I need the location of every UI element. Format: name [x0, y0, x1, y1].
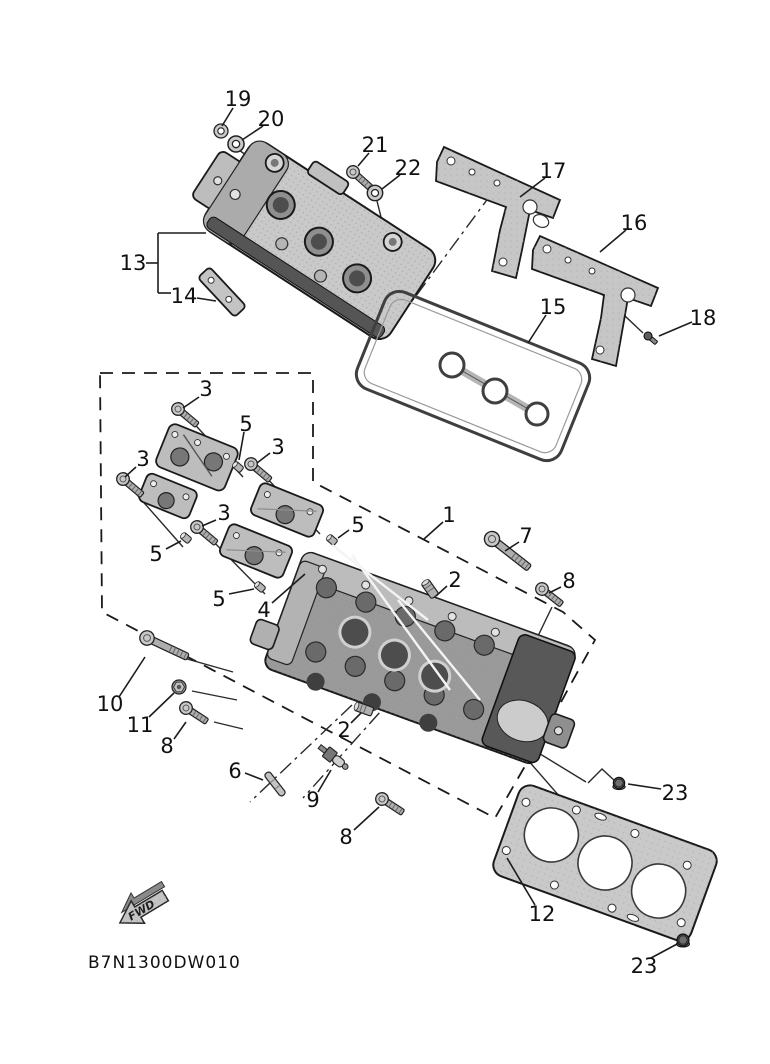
callout-4[interactable]: 4: [257, 598, 270, 622]
callout-17[interactable]: 17: [540, 159, 567, 183]
callout-2[interactable]: 2: [337, 718, 350, 742]
callout-5[interactable]: 5: [149, 542, 162, 566]
leader-line: [659, 322, 692, 336]
callout-15[interactable]: 15: [540, 295, 567, 319]
callout-19[interactable]: 19: [225, 87, 252, 111]
callout-14[interactable]: 14: [171, 284, 198, 308]
callout-20[interactable]: 20: [258, 107, 285, 131]
callout-8[interactable]: 8: [562, 569, 575, 593]
leader-line: [166, 541, 181, 549]
nut-11: [172, 680, 186, 694]
spark-plug-9: [316, 742, 351, 773]
callout-8[interactable]: 8: [339, 825, 352, 849]
callout-22[interactable]: 22: [395, 156, 422, 180]
leader-line: [257, 453, 270, 463]
callout-3[interactable]: 3: [136, 447, 149, 471]
bolt-8a: [533, 580, 565, 609]
leader-line: [338, 530, 349, 538]
callout-6[interactable]: 6: [228, 759, 241, 783]
leader-line: [245, 773, 263, 780]
diagram-code: B7N1300DW010: [88, 953, 241, 973]
leader-line: [436, 586, 447, 596]
part-cover-plate: [198, 267, 247, 317]
grommet-22: [367, 185, 382, 200]
bolt-washer-19: [214, 124, 228, 138]
leader-line: [174, 722, 186, 739]
leader-line: [183, 397, 199, 408]
callout-7[interactable]: 7: [519, 524, 532, 548]
callout-2[interactable]: 2: [448, 568, 461, 592]
stud-6: [264, 771, 287, 797]
callout-23[interactable]: 23: [631, 954, 658, 978]
callout-5[interactable]: 5: [351, 513, 364, 537]
part-cylinder-head: [241, 543, 599, 778]
leader-line: [354, 807, 379, 830]
callout-3[interactable]: 3: [217, 501, 230, 525]
leader-line: [549, 587, 561, 593]
callout-21[interactable]: 21: [362, 133, 389, 157]
fwd-arrow: FWD: [110, 876, 176, 934]
part-head-gasket: [490, 782, 720, 944]
leader-line: [119, 657, 145, 697]
leader-line: [318, 770, 331, 792]
callout-5[interactable]: 5: [212, 587, 225, 611]
screw-18: [642, 330, 659, 346]
callout-23[interactable]: 23: [662, 781, 689, 805]
leader-line: [202, 520, 216, 526]
dowel-nut-23a: [613, 777, 625, 789]
callout-13[interactable]: 13: [120, 251, 147, 275]
part-cylinder-head-cover: [180, 114, 447, 344]
camshaft-caps: [137, 422, 325, 579]
callout-12[interactable]: 12: [529, 902, 556, 926]
leader-line: [229, 589, 254, 594]
callout-3[interactable]: 3: [199, 377, 212, 401]
callout-9[interactable]: 9: [306, 788, 319, 812]
leader-line: [628, 784, 661, 789]
leader-line: [197, 298, 216, 301]
bolt-8b: [177, 699, 210, 727]
exploded-parts-diagram: FWD B7N1300DW010 19202122171618151314353…: [0, 0, 770, 1064]
leader-line: [528, 315, 546, 343]
callout-16[interactable]: 16: [621, 211, 648, 235]
bolt-8c: [373, 790, 406, 818]
leader-line: [351, 713, 361, 723]
dowel-nut-23b: [677, 934, 690, 947]
bolt-10: [137, 628, 190, 663]
callout-11[interactable]: 11: [127, 713, 154, 737]
callout-18[interactable]: 18: [690, 306, 717, 330]
callout-8[interactable]: 8: [160, 734, 173, 758]
callout-3[interactable]: 3: [271, 435, 284, 459]
leader-line: [239, 432, 244, 460]
parts-diagram-page: FWD B7N1300DW010 19202122171618151314353…: [0, 0, 770, 1064]
callout-5[interactable]: 5: [239, 412, 252, 436]
leader-line: [125, 467, 136, 477]
grommet-20: [228, 136, 244, 152]
callout-1[interactable]: 1: [442, 503, 455, 527]
callout-10[interactable]: 10: [97, 692, 124, 716]
leader-line: [424, 522, 443, 539]
